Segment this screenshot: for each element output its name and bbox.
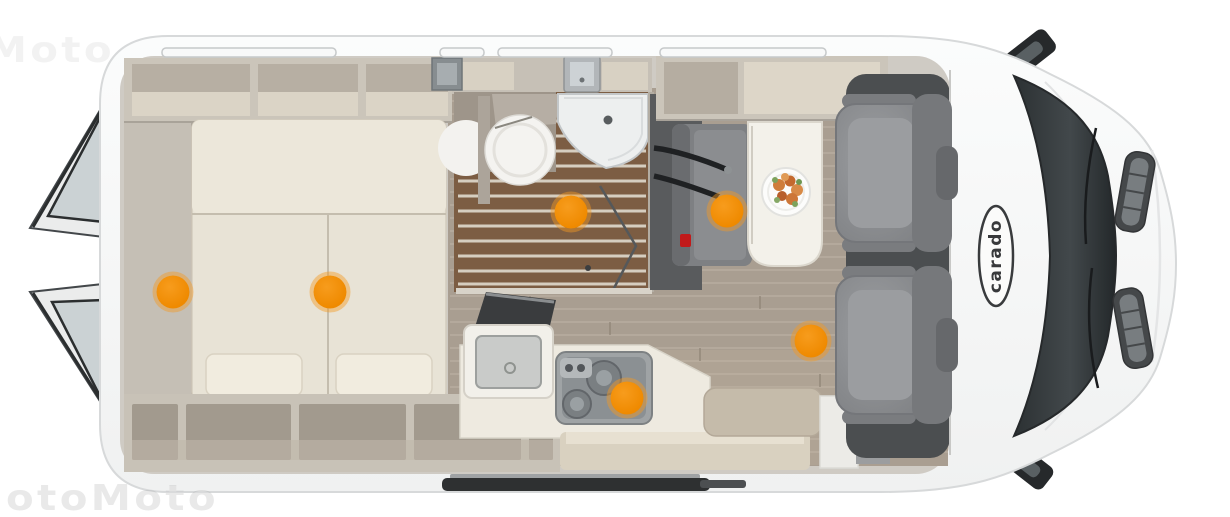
hotspot-dinette[interactable] (711, 195, 744, 228)
hotspot-rear-storage[interactable] (157, 276, 190, 309)
camper-floorplan-screenshot: carado otoMoto o (0, 0, 1230, 517)
hotspot-bathroom[interactable] (555, 196, 588, 229)
hotspot-living-area[interactable] (795, 325, 828, 358)
hotspot-kitchen[interactable] (611, 382, 644, 415)
hotspot-layer (0, 0, 1230, 517)
hotspot-bed[interactable] (314, 276, 347, 309)
